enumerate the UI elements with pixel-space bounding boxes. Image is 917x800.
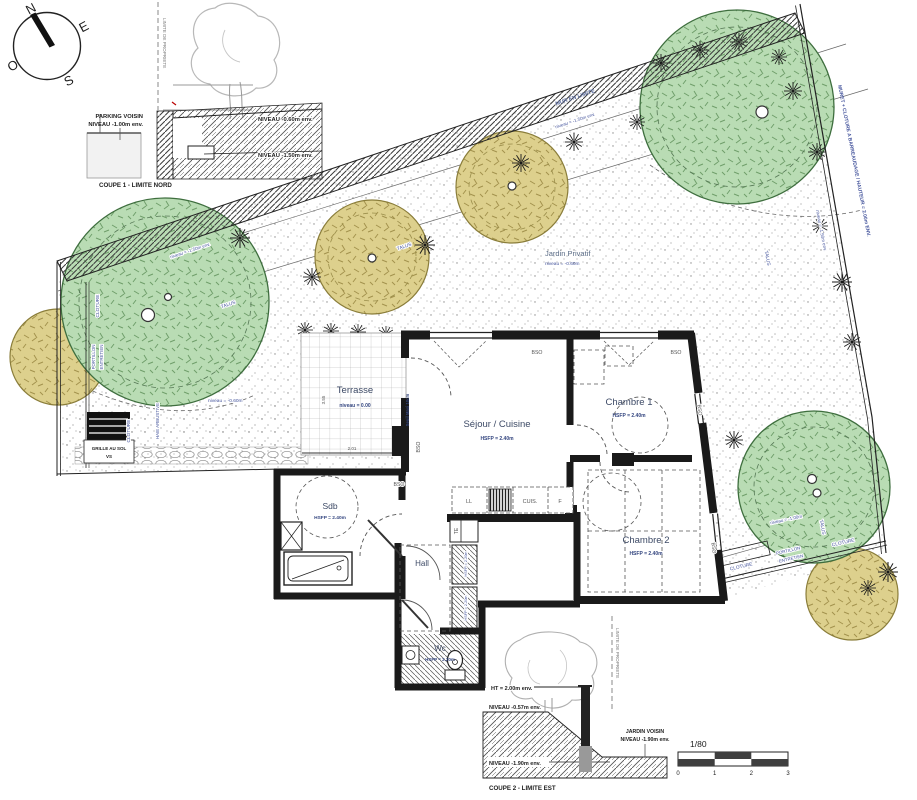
parking-label-1: PARKING VOISIN <box>95 114 143 120</box>
coupe2-ground <box>483 712 667 778</box>
coupe2-niveau-057: NIVEAU -0.57m env. <box>489 705 541 711</box>
coupe2-section <box>483 616 667 778</box>
muret-cloture-label: MURET + CLOTURE A BARREAUDAGE / HAUTEUR … <box>836 85 871 238</box>
grille-label-1: GRILLE AU SOL <box>92 446 127 451</box>
scale-bar <box>678 752 788 766</box>
tree-elevation-sketch <box>191 3 279 96</box>
wc-hsfp: HSFP = 2.20m <box>425 657 455 662</box>
coupe1-wall <box>157 111 173 179</box>
coupe2-ht: HT = 2.00m env. <box>491 686 533 692</box>
appliance-ll: LL <box>466 499 472 505</box>
room-sejour: Séjour / Cuisine <box>463 419 530 430</box>
scale-ratio: 1/80 <box>690 739 707 749</box>
coupe1-caption: COUPE 1 - LIMITE NORD <box>99 182 172 189</box>
tree-green-east <box>738 411 890 563</box>
parking-label-2: NIVEAU -1.00m env. <box>88 122 143 128</box>
room-sdb: Sdb <box>322 501 337 511</box>
chambre1-hsfp: HSFP = 2.40m <box>612 413 646 419</box>
bso-top-2: BSO <box>671 350 682 356</box>
coupe2-limite-label: LIMITE DE PROPRIETE <box>615 628 620 678</box>
coupe1-niveau-060: NIVEAU -0.60m env. <box>258 117 313 123</box>
compass-s: S <box>61 72 76 89</box>
duct-hsfp-1: HSFP = 2.20m <box>464 552 468 577</box>
room-chambre2: Chambre 2 <box>623 535 670 546</box>
bso-terrace: BSO <box>416 442 422 453</box>
coupe2-niveau-190: NIVEAU -1.90m env. <box>489 761 541 767</box>
portillon-west: PORTILLON <box>91 345 96 370</box>
compass-rose <box>14 13 81 80</box>
duct-hsfp-2: HSFP = 2.20m <box>464 596 468 621</box>
te-label: TE <box>454 527 460 534</box>
jardin-privatif-label: Jardin Privatif <box>545 249 591 258</box>
coupe1-niveau-150: NIVEAU -1.50m env. <box>258 153 313 159</box>
floor-plan-drawing: N E S O PARKING VOISIN NIVEAU -1.00m env… <box>0 0 917 800</box>
jardin-privatif-niveau: niveau = -0.60m <box>545 261 580 267</box>
sink-unit <box>489 489 511 511</box>
jardin-voisin-1: JARDIN VOISIN <box>626 729 665 735</box>
bso-sdb: BSO <box>394 482 405 488</box>
floor-plan-page: N E S O PARKING VOISIN NIVEAU -1.00m env… <box>0 0 917 800</box>
dim-355: 3.55 <box>321 395 326 404</box>
room-wc: Wc <box>434 644 446 653</box>
appliance-cuis: CUIS. <box>523 499 538 505</box>
haie-arbustive-label: HAIE ARBUSTIVE <box>155 403 160 439</box>
room-hall: Hall <box>415 559 429 568</box>
room-chambre1: Chambre 1 <box>606 397 653 408</box>
terrasse-niveau: niveau = 0.00 <box>339 403 370 409</box>
compass-e: E <box>76 18 91 35</box>
room-terrasse: Terrasse <box>337 385 373 396</box>
scale-1: 1 <box>713 771 717 777</box>
sejour-hsfp: HSFP = 2.40m <box>480 436 514 442</box>
parking-platform <box>87 133 141 178</box>
chambre2-hsfp: HSFP = 2.40m <box>629 551 663 557</box>
scale-0: 0 <box>676 771 680 777</box>
coupe2-caption: COUPE 2 - LIMITE EST <box>489 785 556 792</box>
entretien-west: ENTRETIEN <box>99 345 104 370</box>
sdb-hsfp: HSFP = 2.40m <box>314 515 346 521</box>
jardin-voisin-2: NIVEAU -1.90m env. <box>621 737 670 743</box>
scale-3: 3 <box>786 771 790 777</box>
cloture-west-1: CLOTURE <box>95 295 101 318</box>
red-tick <box>172 102 176 105</box>
niveau-060-west: niveau = -0.60m <box>208 398 243 404</box>
coupe1-limite-label: LIMITE DE PROPRIETE <box>162 18 167 68</box>
cloture-west-2: CLOTURE <box>126 420 132 443</box>
grille-label-2: VS <box>106 454 112 459</box>
dim-201: 2.01 <box>348 446 357 451</box>
fence-post <box>581 686 590 746</box>
bso-top-1: BSO <box>532 350 543 356</box>
seuil-label: Seuil Maxi 10cm <box>405 394 410 427</box>
scale-2: 2 <box>750 771 754 777</box>
